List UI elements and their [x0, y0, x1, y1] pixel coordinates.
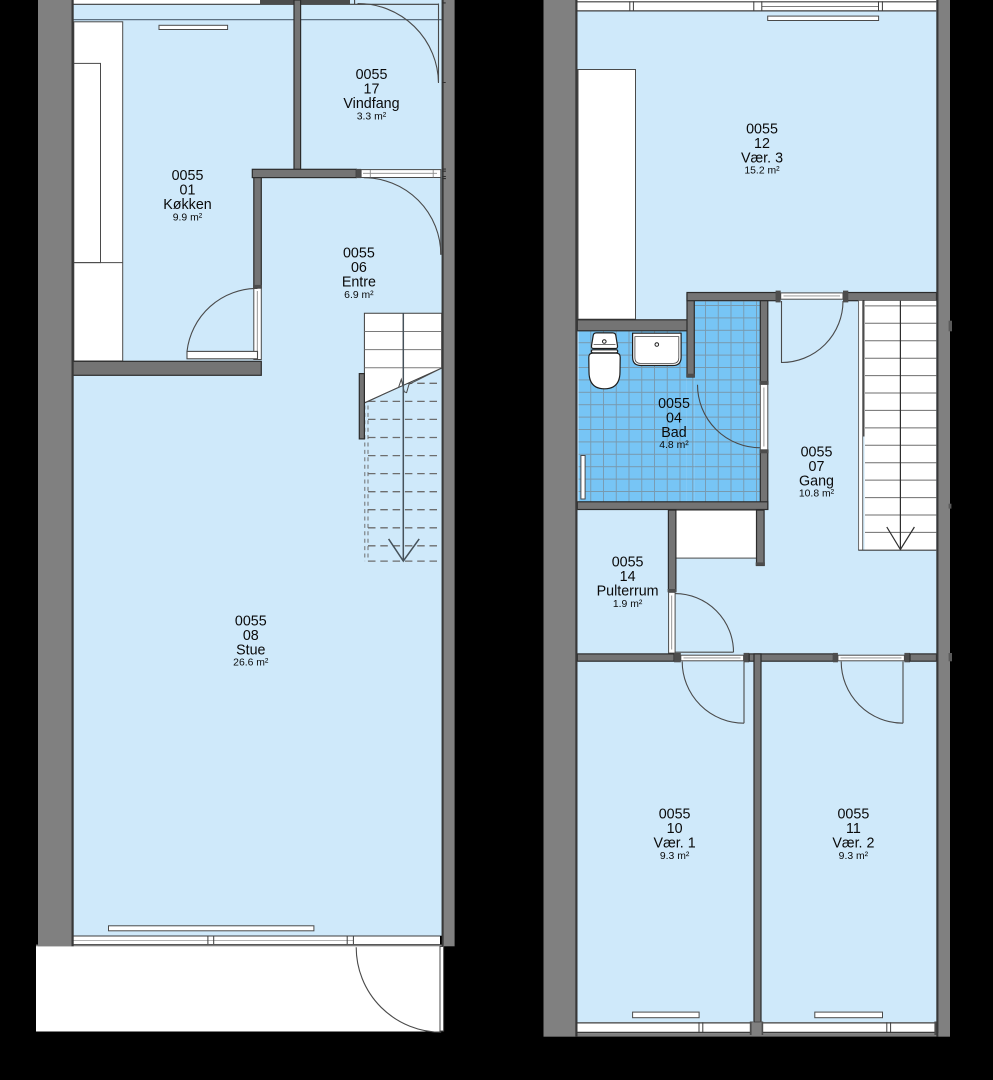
svg-text:9.3 m²: 9.3 m²	[660, 851, 690, 862]
svg-text:Entre: Entre	[342, 275, 376, 291]
svg-text:Bad: Bad	[661, 425, 686, 441]
svg-text:Køkken: Køkken	[163, 197, 212, 213]
svg-text:Pulterrum: Pulterrum	[597, 583, 659, 599]
svg-text:Vær. 1: Vær. 1	[654, 836, 696, 852]
svg-text:15.2 m²: 15.2 m²	[744, 166, 780, 177]
svg-text:9.9 m²: 9.9 m²	[173, 213, 203, 224]
svg-text:Stue: Stue	[236, 642, 265, 658]
svg-text:4.8 m²: 4.8 m²	[659, 440, 689, 451]
svg-text:10.8 m²: 10.8 m²	[799, 489, 835, 500]
svg-text:26.6 m²: 26.6 m²	[233, 658, 269, 669]
svg-text:Vær. 3: Vær. 3	[741, 150, 783, 166]
svg-text:Vindfang: Vindfang	[343, 96, 399, 112]
svg-text:3.3 m²: 3.3 m²	[357, 112, 387, 123]
svg-text:9.3 m²: 9.3 m²	[839, 851, 869, 862]
svg-text:1.9 m²: 1.9 m²	[613, 599, 643, 610]
svg-text:Vær. 2: Vær. 2	[832, 836, 874, 852]
svg-text:Gang: Gang	[799, 473, 834, 489]
svg-text:6.9 m²: 6.9 m²	[344, 290, 374, 301]
